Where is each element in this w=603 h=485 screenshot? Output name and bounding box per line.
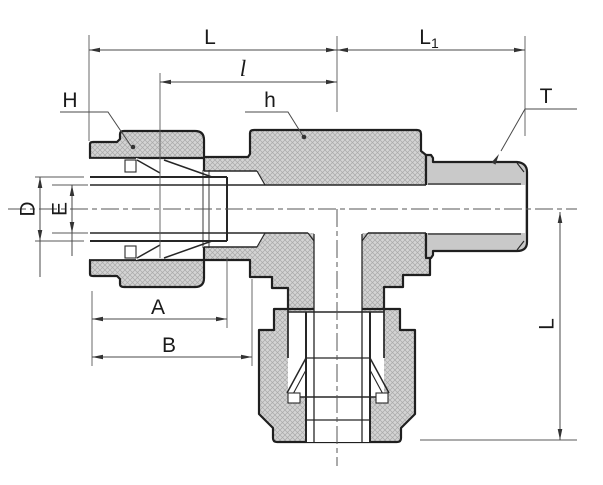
dimension-l: l (160, 56, 337, 84)
branch-tube (306, 312, 370, 442)
dimension-L-right: L (536, 212, 563, 440)
dimension-E: E (49, 185, 75, 256)
branch-bore (314, 231, 362, 312)
dim-label-H: H (62, 89, 77, 112)
leader-T: T (492, 85, 577, 165)
dim-label-B: B (162, 334, 176, 357)
left-nut-upper (90, 131, 204, 158)
dimension-L: L (89, 26, 337, 52)
dim-label-L-right: L (536, 318, 559, 330)
left-nut-lower (90, 260, 204, 287)
dim-label-l: l (240, 56, 246, 81)
dimension-B: B (92, 334, 252, 359)
dim-label-L-top: L (204, 26, 216, 49)
dim-label-D: D (17, 201, 40, 216)
dim-label-h: h (264, 89, 276, 112)
dim-label-A: A (151, 296, 165, 319)
dimension-A: A (92, 296, 227, 321)
dim-label-E: E (49, 202, 72, 216)
dim-label-L1: L1 (419, 26, 439, 51)
dimension-L1: L1 (337, 26, 525, 52)
dim-label-T: T (540, 85, 553, 108)
drawing-page: L L1 l H h T D (0, 0, 603, 485)
dimension-D: D (17, 177, 43, 277)
fitting-section-drawing: L L1 l H h T D (0, 0, 603, 485)
